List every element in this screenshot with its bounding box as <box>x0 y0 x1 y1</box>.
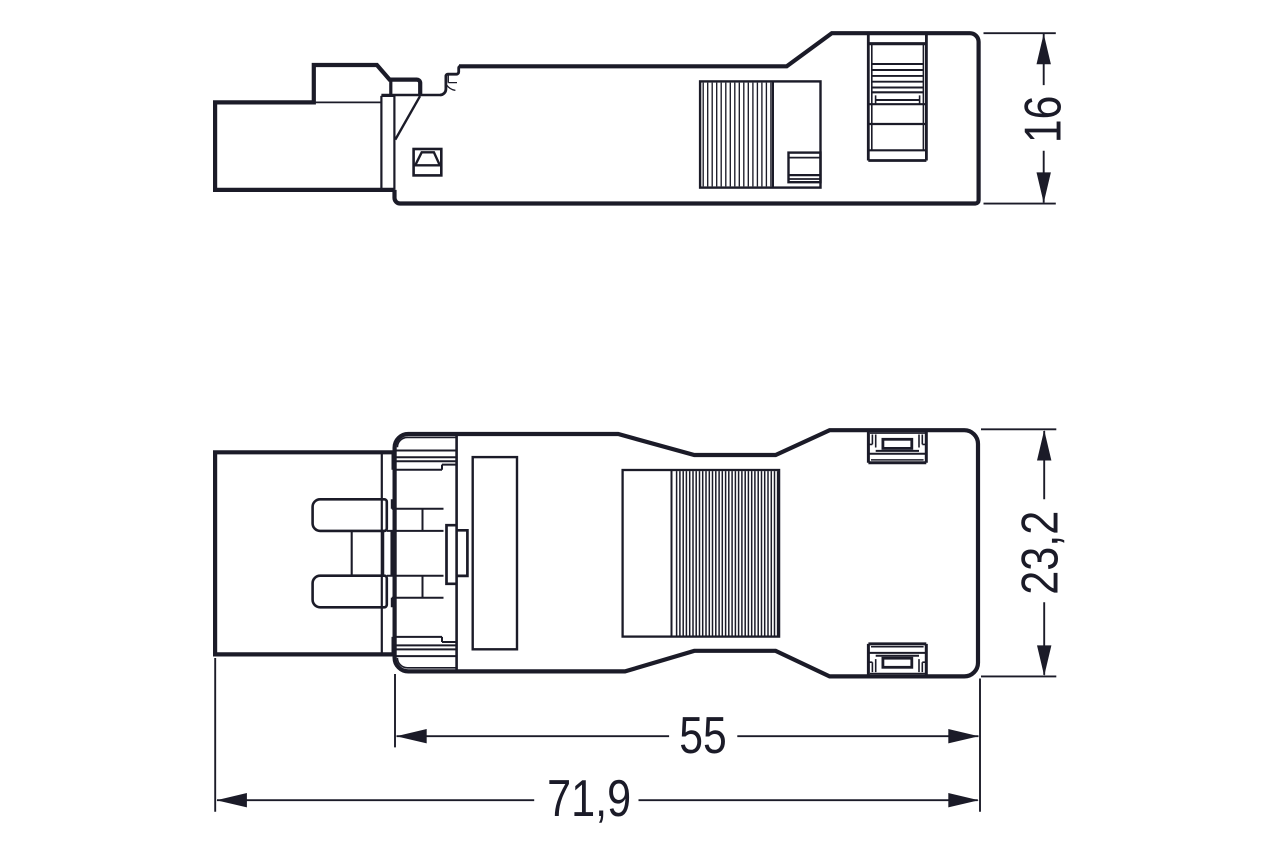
svg-text:55: 55 <box>679 707 727 765</box>
svg-text:16: 16 <box>1014 96 1072 143</box>
svg-text:71,9: 71,9 <box>547 770 631 828</box>
svg-text:23,2: 23,2 <box>1012 511 1070 595</box>
